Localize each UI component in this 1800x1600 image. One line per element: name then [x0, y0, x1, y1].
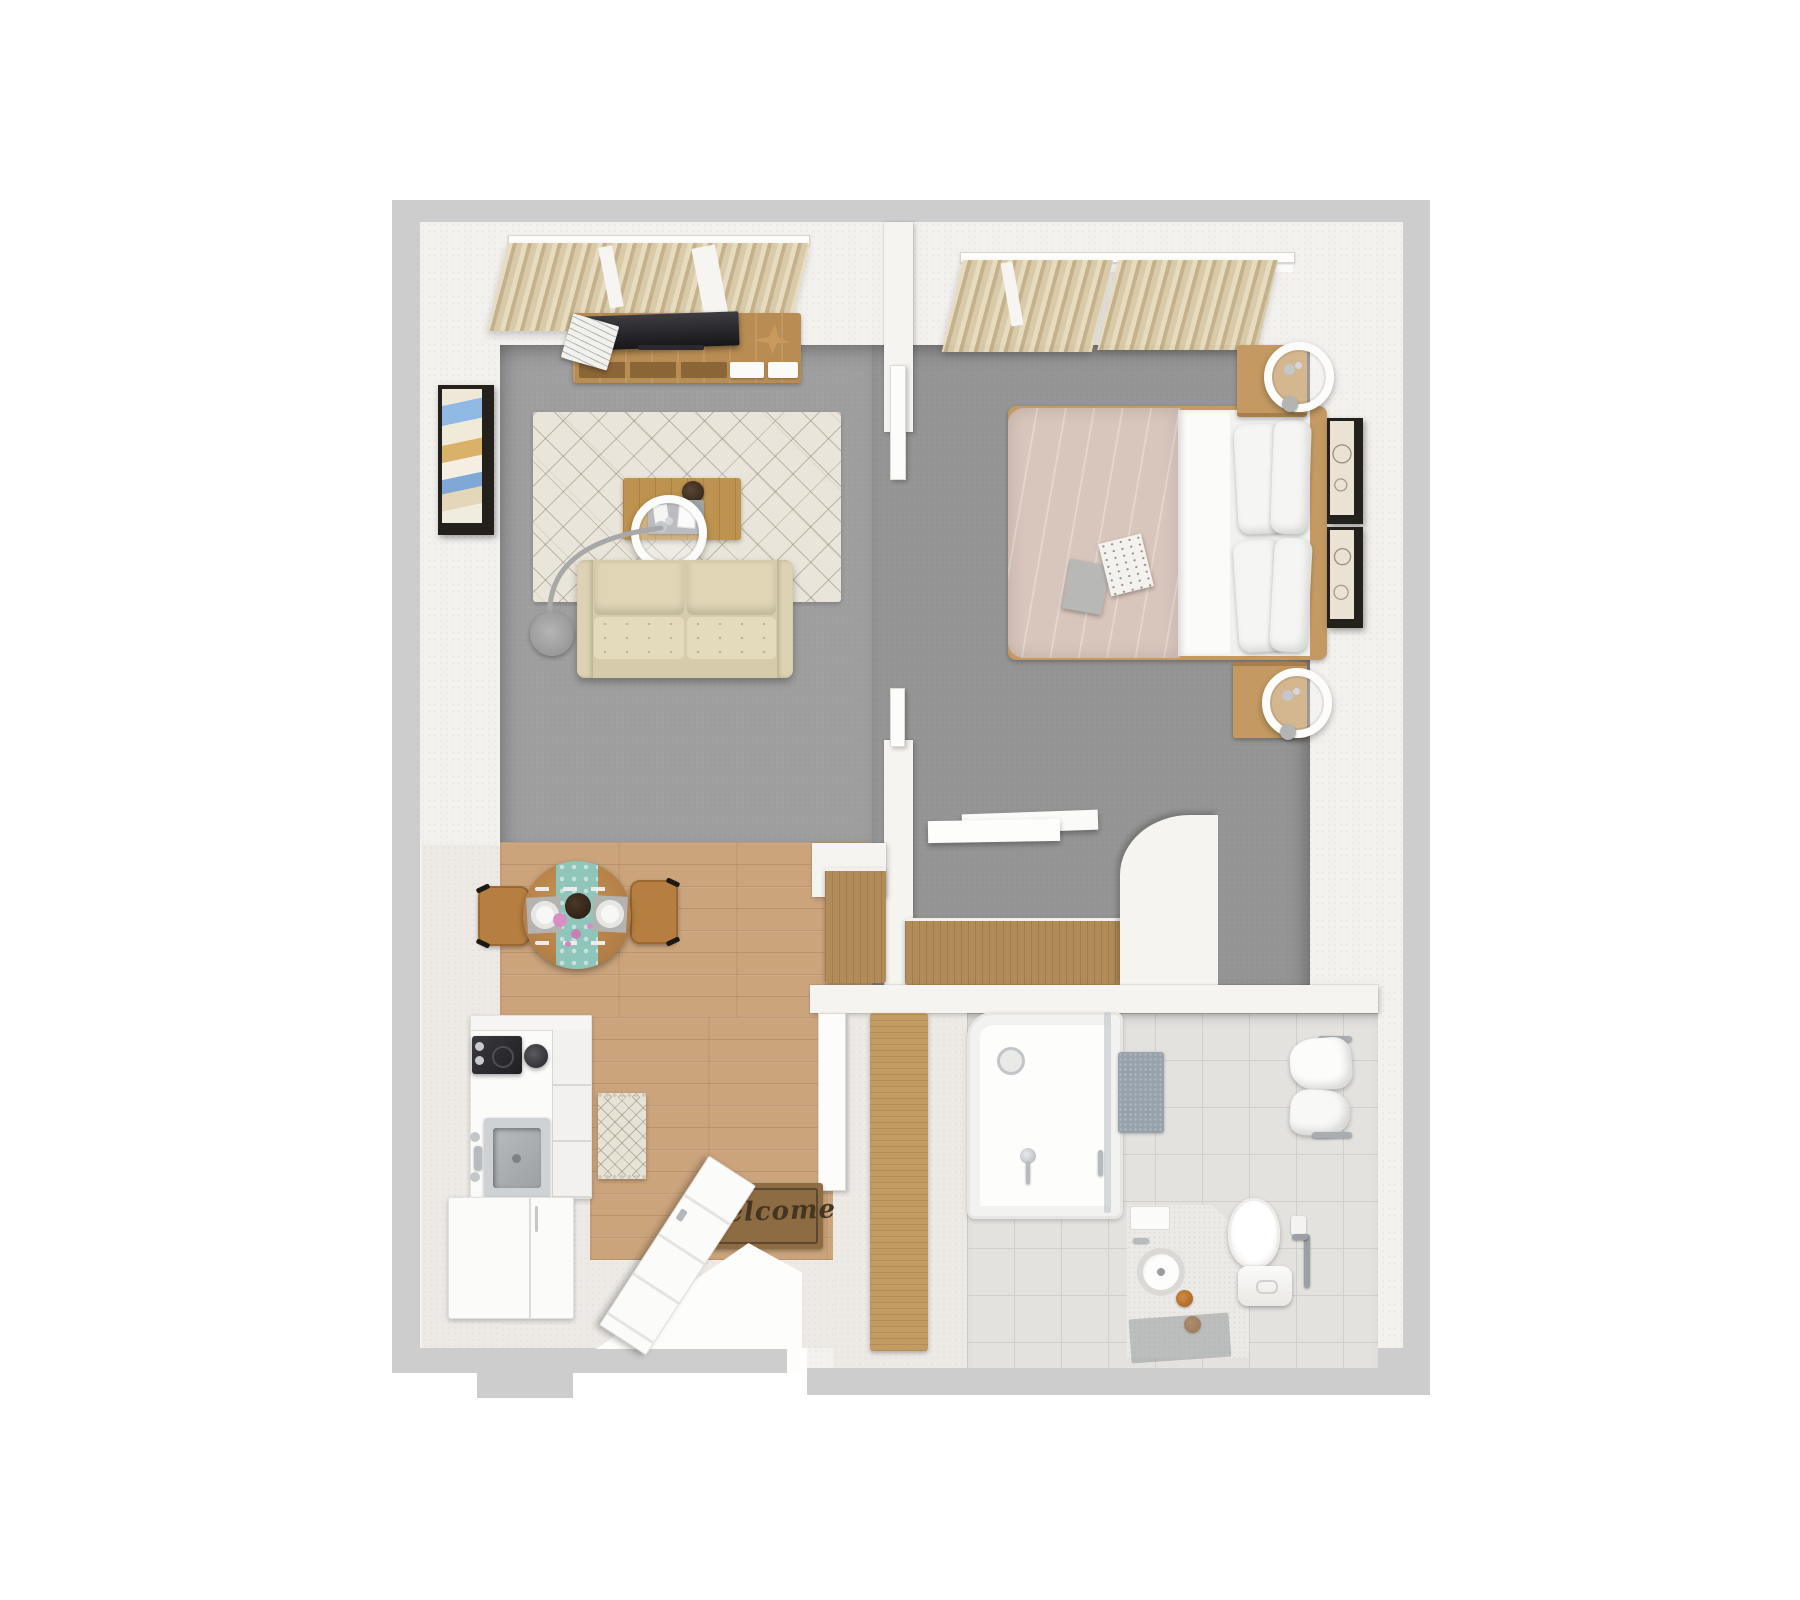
sofa-armrest-right — [777, 560, 793, 678]
sliding-door-lower — [890, 688, 905, 747]
cutlery — [535, 887, 619, 891]
wall-shelf-plank — [928, 819, 1060, 843]
bed-pillow — [1269, 537, 1313, 653]
curved-partition-wall — [1120, 815, 1218, 987]
entry-tall-cabinet — [870, 1013, 928, 1351]
door-handle — [675, 1208, 687, 1222]
sofa-armrest-left — [577, 560, 593, 678]
vanity-soap-box — [1130, 1206, 1170, 1230]
shower-fixture-stem — [1026, 1162, 1030, 1184]
sofa-seat-cushion — [687, 617, 776, 659]
toilet-bowl — [1228, 1198, 1280, 1268]
sink-drain — [512, 1154, 521, 1163]
closet-cabinet — [825, 868, 886, 983]
cooktop-knob — [475, 1042, 484, 1051]
refrigerator — [448, 1197, 574, 1319]
basin-drain — [1157, 1268, 1165, 1276]
bathroom-north-wall — [810, 985, 1378, 1013]
flush-button — [1256, 1280, 1278, 1294]
bedroom-wall-frame-top — [1327, 418, 1363, 524]
bed-pillow — [1270, 419, 1312, 534]
frame-line-art — [1330, 421, 1354, 515]
bathroom-pocket-door — [818, 1013, 846, 1191]
vanity-faucet — [1133, 1238, 1149, 1243]
vanity-floor-mat — [1129, 1313, 1232, 1364]
sofa-seat-cushion — [594, 617, 684, 659]
bed-duvet — [1008, 408, 1180, 658]
hanging-towel-top — [1288, 1036, 1353, 1092]
amber-bottle — [1176, 1290, 1193, 1307]
fridge-door-seam — [529, 1198, 531, 1318]
shower-drain — [997, 1047, 1025, 1075]
nightstand-pot — [1280, 724, 1296, 740]
bedroom-curtains-left — [942, 260, 1113, 352]
kitchen-sink — [484, 1118, 550, 1198]
living-wall-art-frame — [438, 385, 494, 535]
drawer-stack — [552, 1030, 591, 1198]
bedside-ring-lamp-top — [1264, 342, 1334, 412]
kitchen-faucet — [474, 1146, 482, 1170]
kitchen-faucet-handle — [470, 1132, 480, 1142]
grab-bar-vertical — [1304, 1234, 1310, 1288]
sofa-back-cushion — [594, 563, 684, 615]
lamp-inner-chrome — [1282, 690, 1293, 701]
console-drawer — [768, 362, 798, 378]
plate-right — [596, 900, 624, 928]
cooktop — [472, 1036, 522, 1074]
gray-bath-mat — [1118, 1052, 1164, 1133]
bedside-ring-lamp-bottom — [1262, 668, 1332, 738]
nightstand-pot — [1282, 396, 1298, 412]
walk-in-shower-tray — [967, 1012, 1123, 1219]
round-dining-table — [523, 861, 631, 969]
hanging-towel-bottom — [1289, 1088, 1351, 1137]
cutlery — [535, 941, 619, 945]
toilet-tank — [1238, 1266, 1292, 1306]
towel-rail-bottom — [1312, 1132, 1352, 1138]
shower-glass-panel — [1104, 1012, 1111, 1213]
bed-tray-box — [1062, 559, 1110, 615]
fridge-handle — [535, 1206, 538, 1232]
dining-chair-right — [630, 880, 678, 944]
loveseat-sofa — [577, 560, 793, 678]
bedroom-wall-frame-bottom — [1327, 527, 1363, 628]
floorplan-canvas: welcome — [0, 0, 1800, 1600]
kitchen-runner-rug — [598, 1093, 646, 1179]
pink-flowers — [553, 913, 567, 927]
grab-bar-horizontal — [1292, 1234, 1308, 1240]
sofa-back-cushion — [687, 563, 776, 615]
living-wall-art — [442, 389, 482, 523]
console-drawer — [730, 362, 764, 378]
flower-vase — [565, 893, 591, 919]
toilet-paper-roll — [1291, 1216, 1306, 1235]
burner-ring — [492, 1046, 514, 1068]
coffee-maker — [524, 1044, 548, 1068]
sliding-door-upper — [890, 365, 906, 480]
counter-top-edge — [471, 1016, 591, 1031]
shower-glass-handle — [1098, 1150, 1103, 1176]
lamp-inner-chrome — [1284, 364, 1295, 375]
arc-floor-lamp-base — [530, 612, 574, 656]
outer-wall-notch — [477, 1373, 573, 1398]
frame-line-art — [1330, 530, 1354, 619]
bed-folded-sheet — [1178, 410, 1232, 656]
entry-threshold — [787, 1348, 807, 1374]
outer-wall-band-bottom-right — [807, 1368, 1430, 1395]
bedroom-curtains-right — [1097, 260, 1278, 350]
tv-stand-bar — [638, 345, 704, 350]
